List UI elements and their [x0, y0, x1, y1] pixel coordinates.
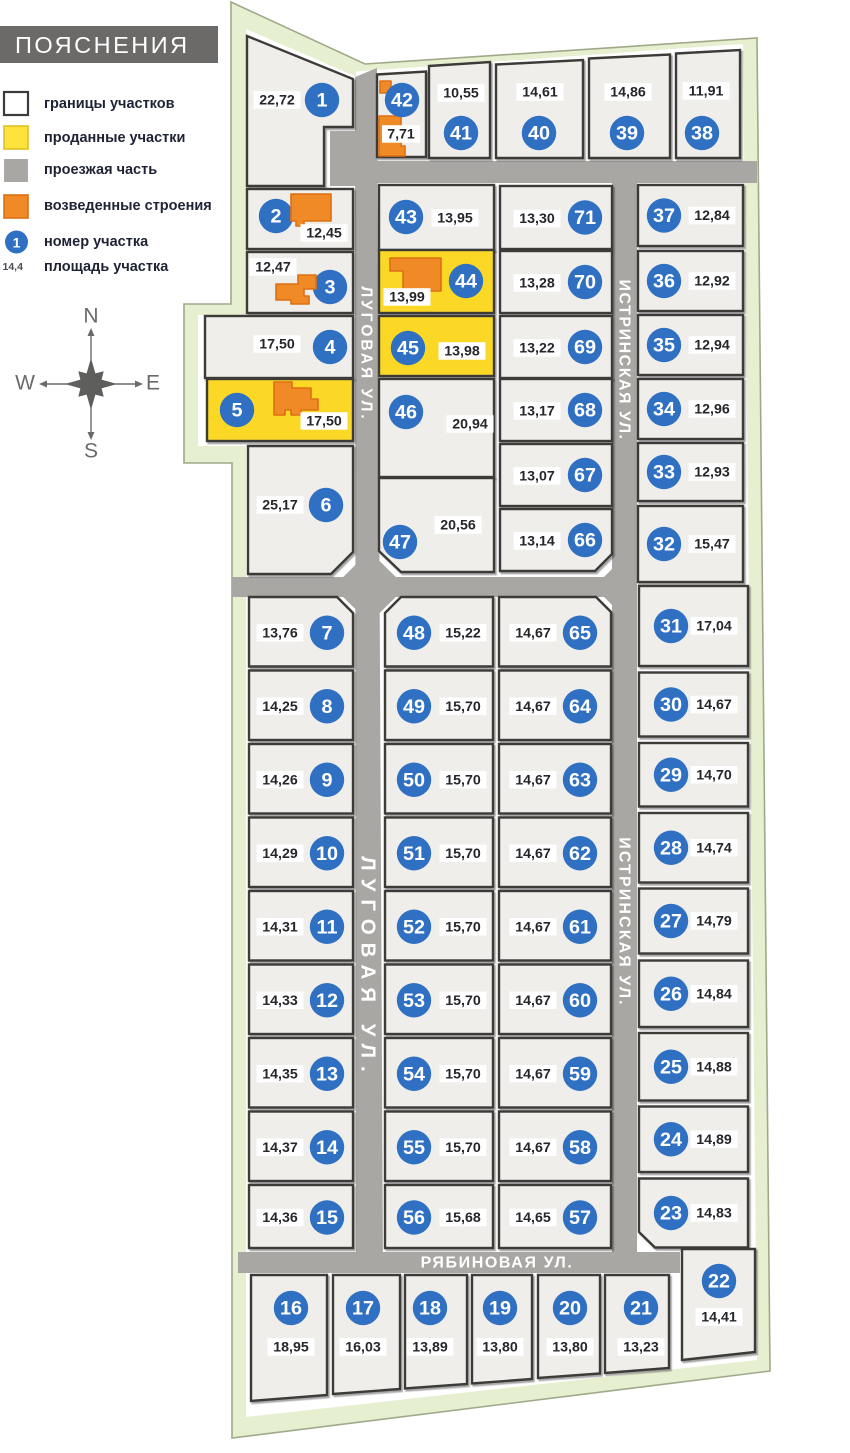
svg-text:13,80: 13,80 — [552, 1340, 588, 1356]
svg-text:14,67: 14,67 — [515, 625, 551, 641]
svg-text:28: 28 — [660, 837, 682, 859]
svg-text:12: 12 — [316, 990, 338, 1012]
svg-text:ИСТРИНСКАЯ УЛ.: ИСТРИНСКАЯ УЛ. — [616, 280, 633, 441]
svg-text:50: 50 — [403, 769, 425, 791]
svg-text:23: 23 — [660, 1203, 682, 1225]
svg-text:25,17: 25,17 — [262, 498, 298, 514]
svg-text:13,17: 13,17 — [519, 404, 555, 420]
svg-text:14,89: 14,89 — [696, 1132, 732, 1148]
svg-text:67: 67 — [574, 465, 596, 487]
svg-text:11: 11 — [317, 916, 338, 938]
svg-text:площадь участка: площадь участка — [44, 259, 169, 275]
svg-text:29: 29 — [660, 764, 682, 786]
svg-text:12,94: 12,94 — [694, 338, 730, 354]
svg-text:14,67: 14,67 — [515, 919, 551, 935]
svg-text:53: 53 — [403, 990, 425, 1012]
svg-text:27: 27 — [660, 911, 682, 933]
svg-text:10,55: 10,55 — [443, 86, 479, 102]
svg-text:15,70: 15,70 — [445, 1066, 481, 1082]
svg-text:ПОЯСНЕНИЯ: ПОЯСНЕНИЯ — [15, 32, 190, 58]
svg-text:13: 13 — [316, 1063, 338, 1085]
svg-text:ЛУГОВАЯ УЛ.: ЛУГОВАЯ УЛ. — [358, 286, 375, 421]
svg-text:26: 26 — [660, 983, 682, 1005]
svg-text:16: 16 — [280, 1298, 302, 1320]
svg-text:7,71: 7,71 — [387, 127, 415, 143]
svg-text:44: 44 — [455, 271, 477, 293]
svg-text:34: 34 — [653, 399, 675, 421]
svg-text:14,36: 14,36 — [262, 1210, 298, 1226]
svg-text:14,41: 14,41 — [701, 1310, 737, 1326]
svg-text:2: 2 — [270, 206, 281, 228]
svg-text:13,80: 13,80 — [482, 1340, 518, 1356]
svg-text:13,99: 13,99 — [389, 290, 425, 306]
svg-text:14,88: 14,88 — [696, 1059, 732, 1075]
svg-text:57: 57 — [569, 1207, 591, 1229]
svg-text:15,70: 15,70 — [445, 772, 481, 788]
svg-text:15,70: 15,70 — [445, 1140, 481, 1156]
svg-text:62: 62 — [569, 843, 591, 865]
svg-text:N: N — [83, 305, 98, 328]
svg-text:15,70: 15,70 — [445, 993, 481, 1009]
svg-text:56: 56 — [403, 1207, 425, 1229]
svg-text:14,67: 14,67 — [696, 697, 732, 713]
svg-text:32: 32 — [653, 534, 675, 556]
svg-text:70: 70 — [574, 272, 596, 294]
svg-text:31: 31 — [660, 616, 682, 638]
svg-text:35: 35 — [653, 335, 675, 357]
svg-text:15,47: 15,47 — [694, 537, 730, 553]
svg-text:43: 43 — [395, 207, 417, 229]
svg-text:64: 64 — [569, 696, 591, 718]
svg-text:14,4: 14,4 — [3, 261, 24, 273]
svg-text:60: 60 — [569, 990, 591, 1012]
svg-text:проезжая часть: проезжая часть — [44, 162, 157, 178]
svg-text:54: 54 — [403, 1063, 425, 1085]
svg-text:14,26: 14,26 — [262, 772, 298, 788]
svg-text:15,70: 15,70 — [445, 919, 481, 935]
svg-text:17,50: 17,50 — [306, 414, 342, 430]
svg-text:проданные участки: проданные участки — [44, 130, 185, 146]
svg-text:14,84: 14,84 — [696, 986, 732, 1002]
svg-text:W: W — [15, 372, 35, 395]
svg-text:47: 47 — [389, 532, 411, 554]
svg-text:S: S — [84, 440, 98, 463]
svg-text:13,76: 13,76 — [262, 625, 298, 641]
svg-text:14,83: 14,83 — [696, 1206, 732, 1222]
svg-text:1: 1 — [316, 90, 327, 112]
svg-text:12,45: 12,45 — [306, 226, 342, 242]
svg-text:30: 30 — [660, 694, 682, 716]
svg-text:13,22: 13,22 — [519, 341, 555, 357]
svg-text:20,56: 20,56 — [440, 518, 476, 534]
svg-text:15,70: 15,70 — [445, 846, 481, 862]
svg-text:65: 65 — [569, 622, 591, 644]
svg-text:52: 52 — [403, 916, 425, 938]
svg-text:41: 41 — [450, 123, 472, 145]
svg-text:21: 21 — [630, 1298, 652, 1320]
svg-text:18,95: 18,95 — [273, 1340, 309, 1356]
svg-text:59: 59 — [569, 1063, 591, 1085]
svg-text:13,28: 13,28 — [519, 276, 555, 292]
svg-text:42: 42 — [391, 90, 413, 112]
svg-text:6: 6 — [320, 495, 331, 517]
svg-text:12,92: 12,92 — [694, 274, 730, 290]
svg-text:13,23: 13,23 — [623, 1340, 659, 1356]
svg-text:14,25: 14,25 — [262, 699, 298, 715]
svg-text:14,67: 14,67 — [515, 699, 551, 715]
svg-text:номер участка: номер участка — [44, 234, 149, 250]
svg-text:58: 58 — [569, 1137, 591, 1159]
svg-text:61: 61 — [569, 916, 591, 938]
svg-text:14,61: 14,61 — [522, 85, 558, 101]
svg-text:14,67: 14,67 — [515, 1140, 551, 1156]
svg-text:14,37: 14,37 — [262, 1140, 298, 1156]
svg-text:33: 33 — [653, 462, 675, 484]
svg-text:14,33: 14,33 — [262, 993, 298, 1009]
svg-text:17,04: 17,04 — [696, 619, 732, 635]
svg-text:границы участков: границы участков — [44, 96, 175, 112]
svg-text:20,94: 20,94 — [452, 417, 488, 433]
svg-text:14,86: 14,86 — [610, 85, 646, 101]
svg-text:ИСТРИНСКАЯ УЛ.: ИСТРИНСКАЯ УЛ. — [616, 837, 633, 1006]
svg-text:24: 24 — [660, 1129, 682, 1151]
svg-text:71: 71 — [574, 207, 596, 229]
svg-text:11,91: 11,91 — [689, 84, 724, 100]
svg-text:12,47: 12,47 — [255, 260, 291, 276]
svg-text:38: 38 — [691, 123, 713, 145]
svg-text:8: 8 — [321, 696, 332, 718]
svg-text:18: 18 — [419, 1298, 441, 1320]
svg-text:ЛУГОВАЯ УЛ.: ЛУГОВАЯ УЛ. — [357, 856, 380, 1080]
svg-text:14,31: 14,31 — [262, 919, 298, 935]
svg-text:46: 46 — [395, 402, 417, 424]
svg-text:РЯБИНОВАЯ УЛ.: РЯБИНОВАЯ УЛ. — [421, 1255, 574, 1272]
svg-text:14,29: 14,29 — [262, 846, 298, 862]
svg-text:15: 15 — [316, 1207, 338, 1229]
svg-text:1: 1 — [13, 235, 21, 251]
svg-text:12,96: 12,96 — [694, 402, 730, 418]
svg-text:25: 25 — [660, 1056, 682, 1078]
svg-text:12,84: 12,84 — [694, 208, 730, 224]
svg-text:13,07: 13,07 — [519, 469, 555, 485]
svg-text:4: 4 — [324, 337, 335, 359]
svg-text:48: 48 — [403, 622, 425, 644]
svg-text:15,70: 15,70 — [445, 699, 481, 715]
svg-text:13,30: 13,30 — [519, 211, 555, 227]
svg-text:39: 39 — [616, 123, 638, 145]
svg-text:13,98: 13,98 — [444, 344, 480, 360]
svg-text:22,72: 22,72 — [259, 93, 295, 109]
svg-text:14,74: 14,74 — [696, 840, 732, 856]
svg-text:14,79: 14,79 — [696, 914, 732, 930]
svg-text:3: 3 — [324, 277, 335, 299]
svg-text:7: 7 — [321, 622, 332, 644]
svg-text:55: 55 — [403, 1137, 425, 1159]
svg-text:51: 51 — [403, 843, 425, 865]
svg-text:14,67: 14,67 — [515, 1066, 551, 1082]
svg-text:14,65: 14,65 — [515, 1210, 551, 1226]
svg-text:14,67: 14,67 — [515, 772, 551, 788]
svg-text:69: 69 — [574, 337, 596, 359]
svg-text:14,67: 14,67 — [515, 993, 551, 1009]
svg-text:17,50: 17,50 — [259, 337, 295, 353]
svg-text:49: 49 — [403, 696, 425, 718]
svg-text:13,14: 13,14 — [519, 534, 555, 550]
svg-text:22: 22 — [708, 1271, 730, 1293]
svg-text:5: 5 — [231, 400, 242, 422]
svg-text:15,68: 15,68 — [445, 1210, 481, 1226]
svg-text:13,95: 13,95 — [437, 211, 473, 227]
svg-text:19: 19 — [489, 1298, 511, 1320]
svg-text:16,03: 16,03 — [345, 1340, 381, 1356]
svg-text:20: 20 — [559, 1298, 581, 1320]
svg-text:E: E — [146, 372, 160, 395]
svg-text:17: 17 — [352, 1298, 374, 1320]
svg-text:66: 66 — [574, 530, 596, 552]
svg-text:возведенные строения: возведенные строения — [44, 198, 212, 214]
svg-text:40: 40 — [528, 123, 550, 145]
svg-text:14,35: 14,35 — [262, 1066, 298, 1082]
svg-text:14,70: 14,70 — [696, 767, 732, 783]
svg-text:10: 10 — [316, 843, 338, 865]
svg-text:45: 45 — [397, 338, 419, 360]
svg-text:36: 36 — [653, 271, 675, 293]
svg-text:37: 37 — [653, 205, 675, 227]
svg-text:13,89: 13,89 — [412, 1340, 448, 1356]
svg-text:14,67: 14,67 — [515, 846, 551, 862]
svg-text:68: 68 — [574, 400, 596, 422]
svg-text:15,22: 15,22 — [445, 625, 481, 641]
svg-text:14: 14 — [316, 1137, 338, 1159]
svg-text:63: 63 — [569, 769, 591, 791]
svg-text:9: 9 — [321, 769, 332, 791]
svg-text:12,93: 12,93 — [694, 465, 730, 481]
